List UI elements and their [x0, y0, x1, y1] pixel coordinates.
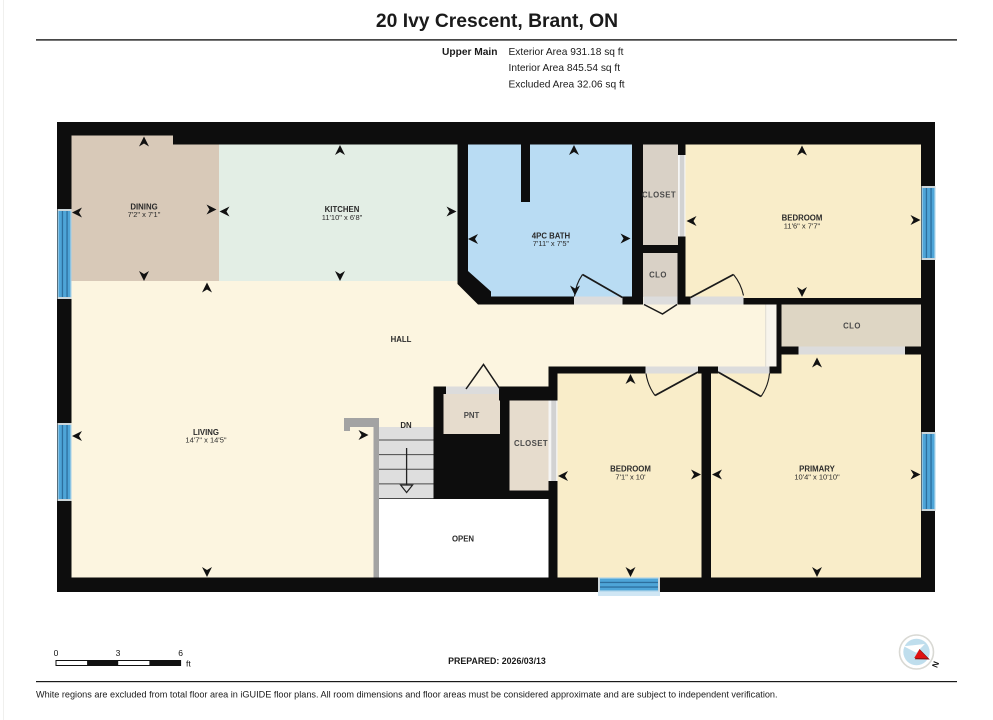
svg-text:Upper Main: Upper Main [442, 47, 497, 58]
svg-text:3: 3 [116, 648, 121, 658]
svg-text:HALL: HALL [391, 335, 412, 344]
svg-text:CLOSET: CLOSET [642, 191, 676, 200]
svg-text:PREPARED: 2026/03/13: PREPARED: 2026/03/13 [448, 656, 546, 666]
svg-text:14'7" x 14'5": 14'7" x 14'5" [185, 436, 226, 445]
svg-text:7'11" x 7'5": 7'11" x 7'5" [533, 239, 570, 248]
svg-text:7'2" x 7'1": 7'2" x 7'1" [128, 210, 161, 219]
svg-text:CLOSET: CLOSET [514, 439, 548, 448]
svg-text:PNT: PNT [464, 411, 480, 420]
svg-text:6: 6 [178, 648, 183, 658]
svg-text:7'1" x 10': 7'1" x 10' [615, 473, 646, 482]
svg-text:Exterior Area 931.18 sq ft: Exterior Area 931.18 sq ft [509, 47, 624, 58]
svg-text:White regions are excluded fro: White regions are excluded from total fl… [36, 690, 778, 700]
svg-text:Interior Area 845.54 sq ft: Interior Area 845.54 sq ft [509, 63, 621, 74]
svg-text:11'10" x 6'8": 11'10" x 6'8" [322, 213, 363, 222]
svg-text:OPEN: OPEN [452, 535, 474, 544]
svg-text:10'4" x 10'10": 10'4" x 10'10" [794, 473, 840, 482]
svg-text:DN: DN [400, 421, 412, 430]
svg-text:20 Ivy Crescent, Brant, ON: 20 Ivy Crescent, Brant, ON [376, 11, 618, 32]
svg-text:CLO: CLO [843, 322, 861, 331]
svg-text:0: 0 [54, 648, 59, 658]
svg-text:11'6" x 7'7": 11'6" x 7'7" [784, 222, 821, 231]
svg-text:Excluded Area 32.06 sq ft: Excluded Area 32.06 sq ft [509, 79, 625, 90]
svg-text:ft: ft [186, 659, 191, 669]
svg-text:CLO: CLO [649, 271, 667, 280]
